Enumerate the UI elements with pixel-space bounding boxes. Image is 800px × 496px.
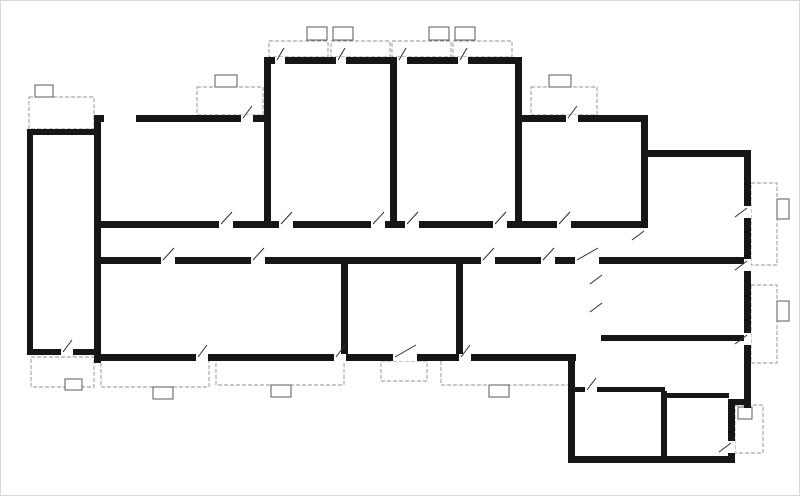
- door-opening: [405, 221, 419, 228]
- balcony-box: [429, 27, 449, 40]
- floor-plan-svg: [1, 1, 799, 495]
- wall: [94, 115, 101, 363]
- balcony-box: [307, 27, 327, 40]
- door-opening: [481, 257, 495, 264]
- balcony-box: [65, 379, 82, 390]
- door-opening: [251, 257, 265, 264]
- wall: [264, 57, 271, 228]
- door-opening: [219, 221, 233, 228]
- balcony-box: [777, 199, 789, 219]
- door-opening: [458, 57, 468, 64]
- door-opening: [566, 115, 578, 122]
- door-opening: [336, 57, 346, 64]
- wall: [728, 399, 751, 405]
- wall: [341, 264, 348, 357]
- door-opening: [744, 206, 751, 218]
- wall: [744, 150, 751, 408]
- floor-plan-page: [0, 0, 800, 496]
- balcony-box: [777, 301, 789, 321]
- wall: [601, 335, 749, 341]
- wall: [94, 257, 751, 264]
- wall: [728, 399, 735, 463]
- balcony-box: [333, 27, 353, 40]
- balcony-box: [738, 407, 752, 419]
- balcony-box: [215, 75, 237, 87]
- wall: [515, 115, 648, 122]
- door-opening: [493, 221, 507, 228]
- wall: [390, 57, 397, 228]
- wall: [27, 129, 100, 135]
- door-opening: [557, 221, 571, 228]
- door-opening: [371, 221, 385, 228]
- door-opening: [241, 115, 253, 122]
- wall: [661, 391, 667, 461]
- door-opening: [459, 354, 471, 361]
- door-opening: [275, 57, 285, 64]
- door-opening: [575, 257, 599, 264]
- wall: [641, 150, 751, 157]
- balcony-box: [35, 85, 53, 97]
- door-opening: [641, 229, 648, 241]
- door-opening: [334, 354, 346, 361]
- wall: [641, 115, 648, 228]
- door-opening: [61, 349, 73, 355]
- plan-background: [1, 1, 799, 495]
- wall: [568, 456, 735, 463]
- door-opening: [541, 257, 555, 264]
- door-opening: [728, 441, 735, 453]
- door-opening: [397, 57, 407, 64]
- wall: [456, 264, 463, 357]
- door-opening: [279, 221, 293, 228]
- door-opening: [599, 301, 603, 313]
- wall: [663, 393, 729, 398]
- door-opening: [599, 273, 603, 285]
- door-opening: [161, 257, 175, 264]
- window: [104, 115, 136, 122]
- balcony-box: [489, 385, 509, 397]
- door-opening: [393, 354, 417, 361]
- door-opening: [744, 333, 751, 345]
- door-opening: [196, 354, 208, 361]
- balcony-box: [153, 387, 173, 399]
- balcony-box: [271, 385, 291, 397]
- wall: [568, 354, 575, 463]
- wall: [27, 129, 33, 355]
- door-opening: [744, 259, 751, 271]
- balcony-box: [455, 27, 475, 40]
- balcony-box: [549, 75, 571, 87]
- wall: [515, 57, 522, 228]
